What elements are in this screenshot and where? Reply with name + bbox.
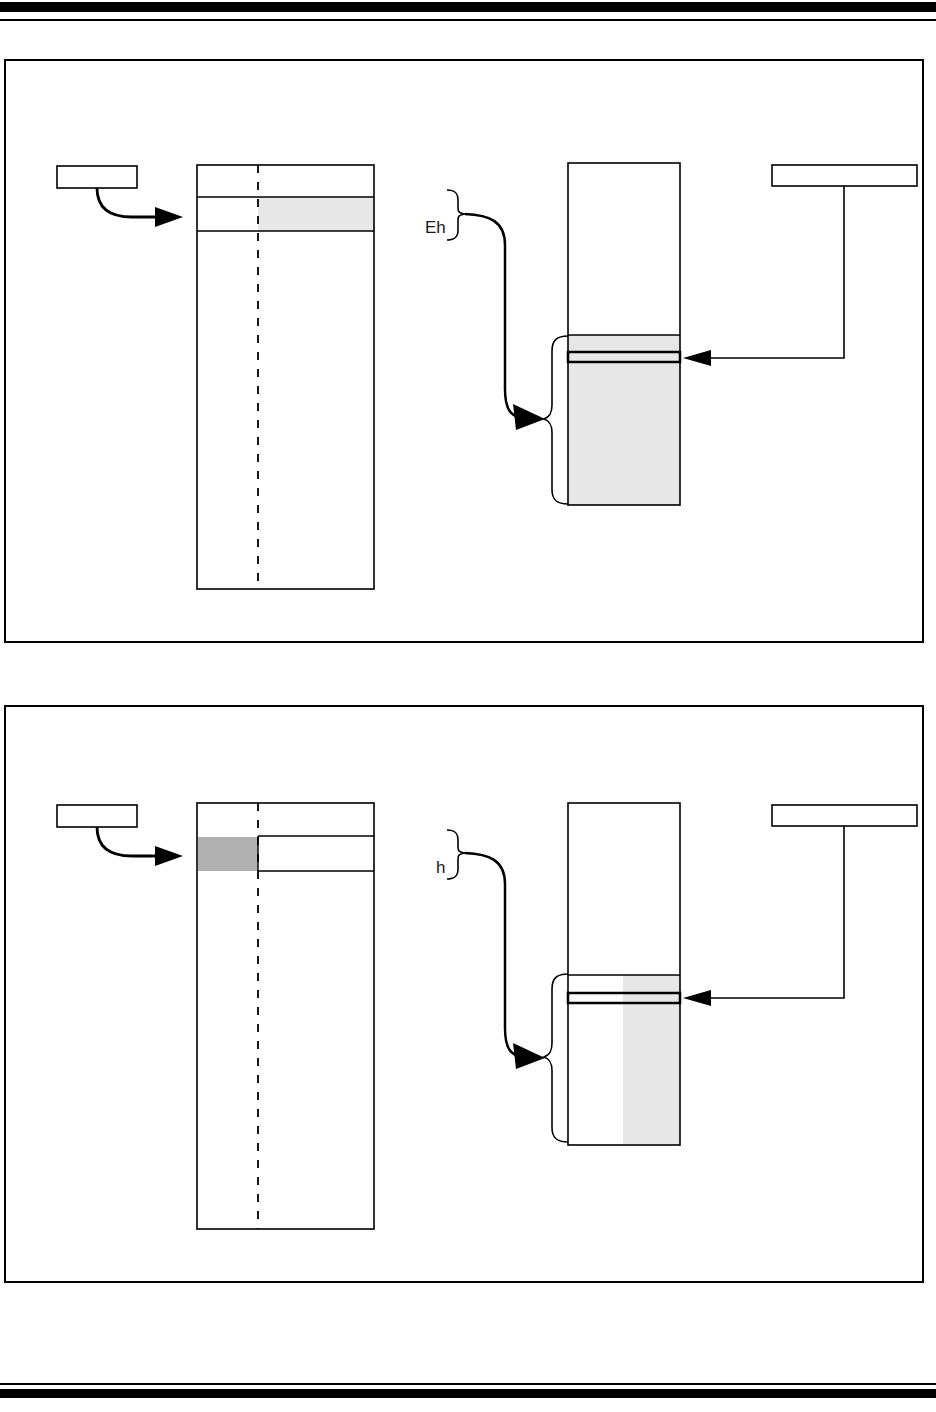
- curved-pointer: [465, 853, 521, 1057]
- small-brace-icon: [447, 190, 465, 240]
- pointer-line: [710, 186, 844, 358]
- footer-rule-thick: [0, 1389, 936, 1398]
- curved-arrow: [97, 827, 156, 856]
- figure-1-diagram: Eh: [4, 59, 924, 643]
- bank-row-highlight: [198, 837, 258, 871]
- bank-row-highlight: [258, 197, 374, 231]
- top-right-register-box: [772, 165, 917, 186]
- register-box: [57, 166, 137, 188]
- top-right-register-box: [772, 805, 917, 826]
- document-page: Eh: [0, 0, 936, 1412]
- figure-2-diagram: h: [4, 705, 924, 1283]
- brace-label: Eh: [425, 218, 446, 237]
- figure-1-panel: Eh: [4, 59, 924, 643]
- shaded-column: [623, 975, 680, 1144]
- header-rule-thick: [0, 2, 936, 12]
- arrowhead-icon: [683, 350, 711, 366]
- pointer-line: [710, 826, 844, 998]
- register-box: [57, 805, 137, 827]
- curved-pointer: [465, 214, 521, 418]
- curved-arrow: [97, 188, 156, 217]
- arrowhead-icon: [513, 1043, 545, 1069]
- shaded-bank-region: [568, 335, 680, 505]
- arrowhead-icon: [683, 990, 711, 1006]
- arrowhead-icon: [155, 846, 183, 866]
- small-brace-icon: [447, 830, 465, 879]
- footer-rule-thin: [0, 1383, 936, 1385]
- big-brace-icon: [544, 974, 568, 1142]
- arrowhead-icon: [155, 207, 183, 227]
- brace-label: h: [436, 858, 445, 877]
- big-brace-icon: [544, 336, 568, 504]
- figure-1-border: [5, 60, 923, 642]
- header-rule-thin: [0, 19, 936, 21]
- arrowhead-icon: [513, 404, 545, 430]
- figure-2-panel: h: [4, 705, 924, 1283]
- figure-2-border: [5, 706, 923, 1282]
